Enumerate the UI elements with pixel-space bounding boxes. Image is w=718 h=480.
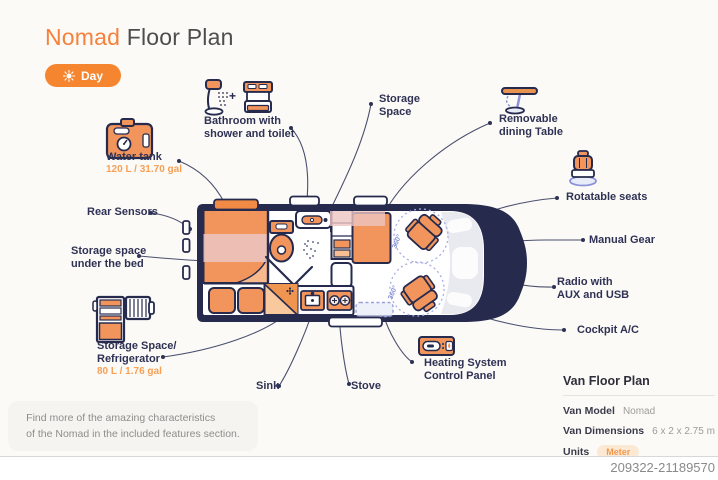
heating-label: Heating System Control Panel [424,357,507,382]
kitchen-counter [297,286,354,315]
storage-space-label: Storage Space [379,93,420,118]
removable-table-label: Removable dining Table [499,113,563,138]
van-model-label: Van Model [563,405,615,417]
kitchen-sink [301,291,324,310]
stove [328,291,352,310]
water-tank-label: Water tank [106,151,162,164]
cockpit-ac-label: Cockpit A/C [577,324,639,337]
sink-label: Sink [256,380,279,393]
rotatable-seats-label: Rotatable seats [566,191,647,204]
listing-id: 209322-21189570 [610,460,715,475]
refrigerator-label: Storage Space/ Refrigerator [97,340,176,365]
dining-table-icon [502,88,537,114]
van-info-panel: Van Floor Plan Van Model Nomad Van Dimen… [563,374,715,467]
dining-bench [332,263,352,287]
panel-divider [563,395,715,396]
refrigerator-icon [93,297,154,342]
corner-counter [265,284,298,315]
storage-under-bed-label: Storage space under the bed [71,245,146,270]
main-area: Nomad Floor Plan Day [0,0,718,456]
dining-overhead-storage-overlay [330,211,385,226]
toilet [270,221,293,262]
refrigerator-capacity: 80 L / 1.76 gal [97,366,162,377]
bathroom-label: Bathroom with shower and toilet [204,115,294,140]
under-bed-bench [204,284,268,315]
rear-sensors-label: Rear Sensors [87,206,158,219]
heating-panel-icon [419,337,454,355]
van-model-value: Nomad [623,406,655,417]
bathroom-sink [296,211,331,228]
panel-title: Van Floor Plan [563,374,715,388]
toilet-icon [244,82,272,112]
manual-gear-label: Manual Gear [589,234,655,247]
water-tank-capacity: 120 L / 31.70 gal [106,164,182,175]
plus-icon: + [229,89,236,103]
features-note: Find more of the amazing characteristics… [8,401,258,451]
roof-water-tank [214,200,258,210]
heating-panel-location [356,303,393,317]
van-dimensions-label: Van Dimensions [563,425,644,437]
floor-plan-infographic: Nomad Floor Plan Day [0,0,718,480]
shower-icon [206,80,228,115]
van-model-row: Van Model Nomad [563,405,715,417]
rear-sensor-tabs [183,221,190,279]
van-dimensions-value: 6 x 2 x 2.75 m [652,426,715,437]
van-dimensions-row: Van Dimensions 6 x 2 x 2.75 m [563,425,715,437]
entry-step [329,318,382,327]
stove-label: Stove [351,380,381,393]
footer-bar: 209322-21189570 [0,456,718,480]
radio-label: Radio with AUX and USB [557,276,629,301]
rotatable-seat-icon [570,151,596,186]
bed-overhead-storage-overlay [204,234,269,262]
